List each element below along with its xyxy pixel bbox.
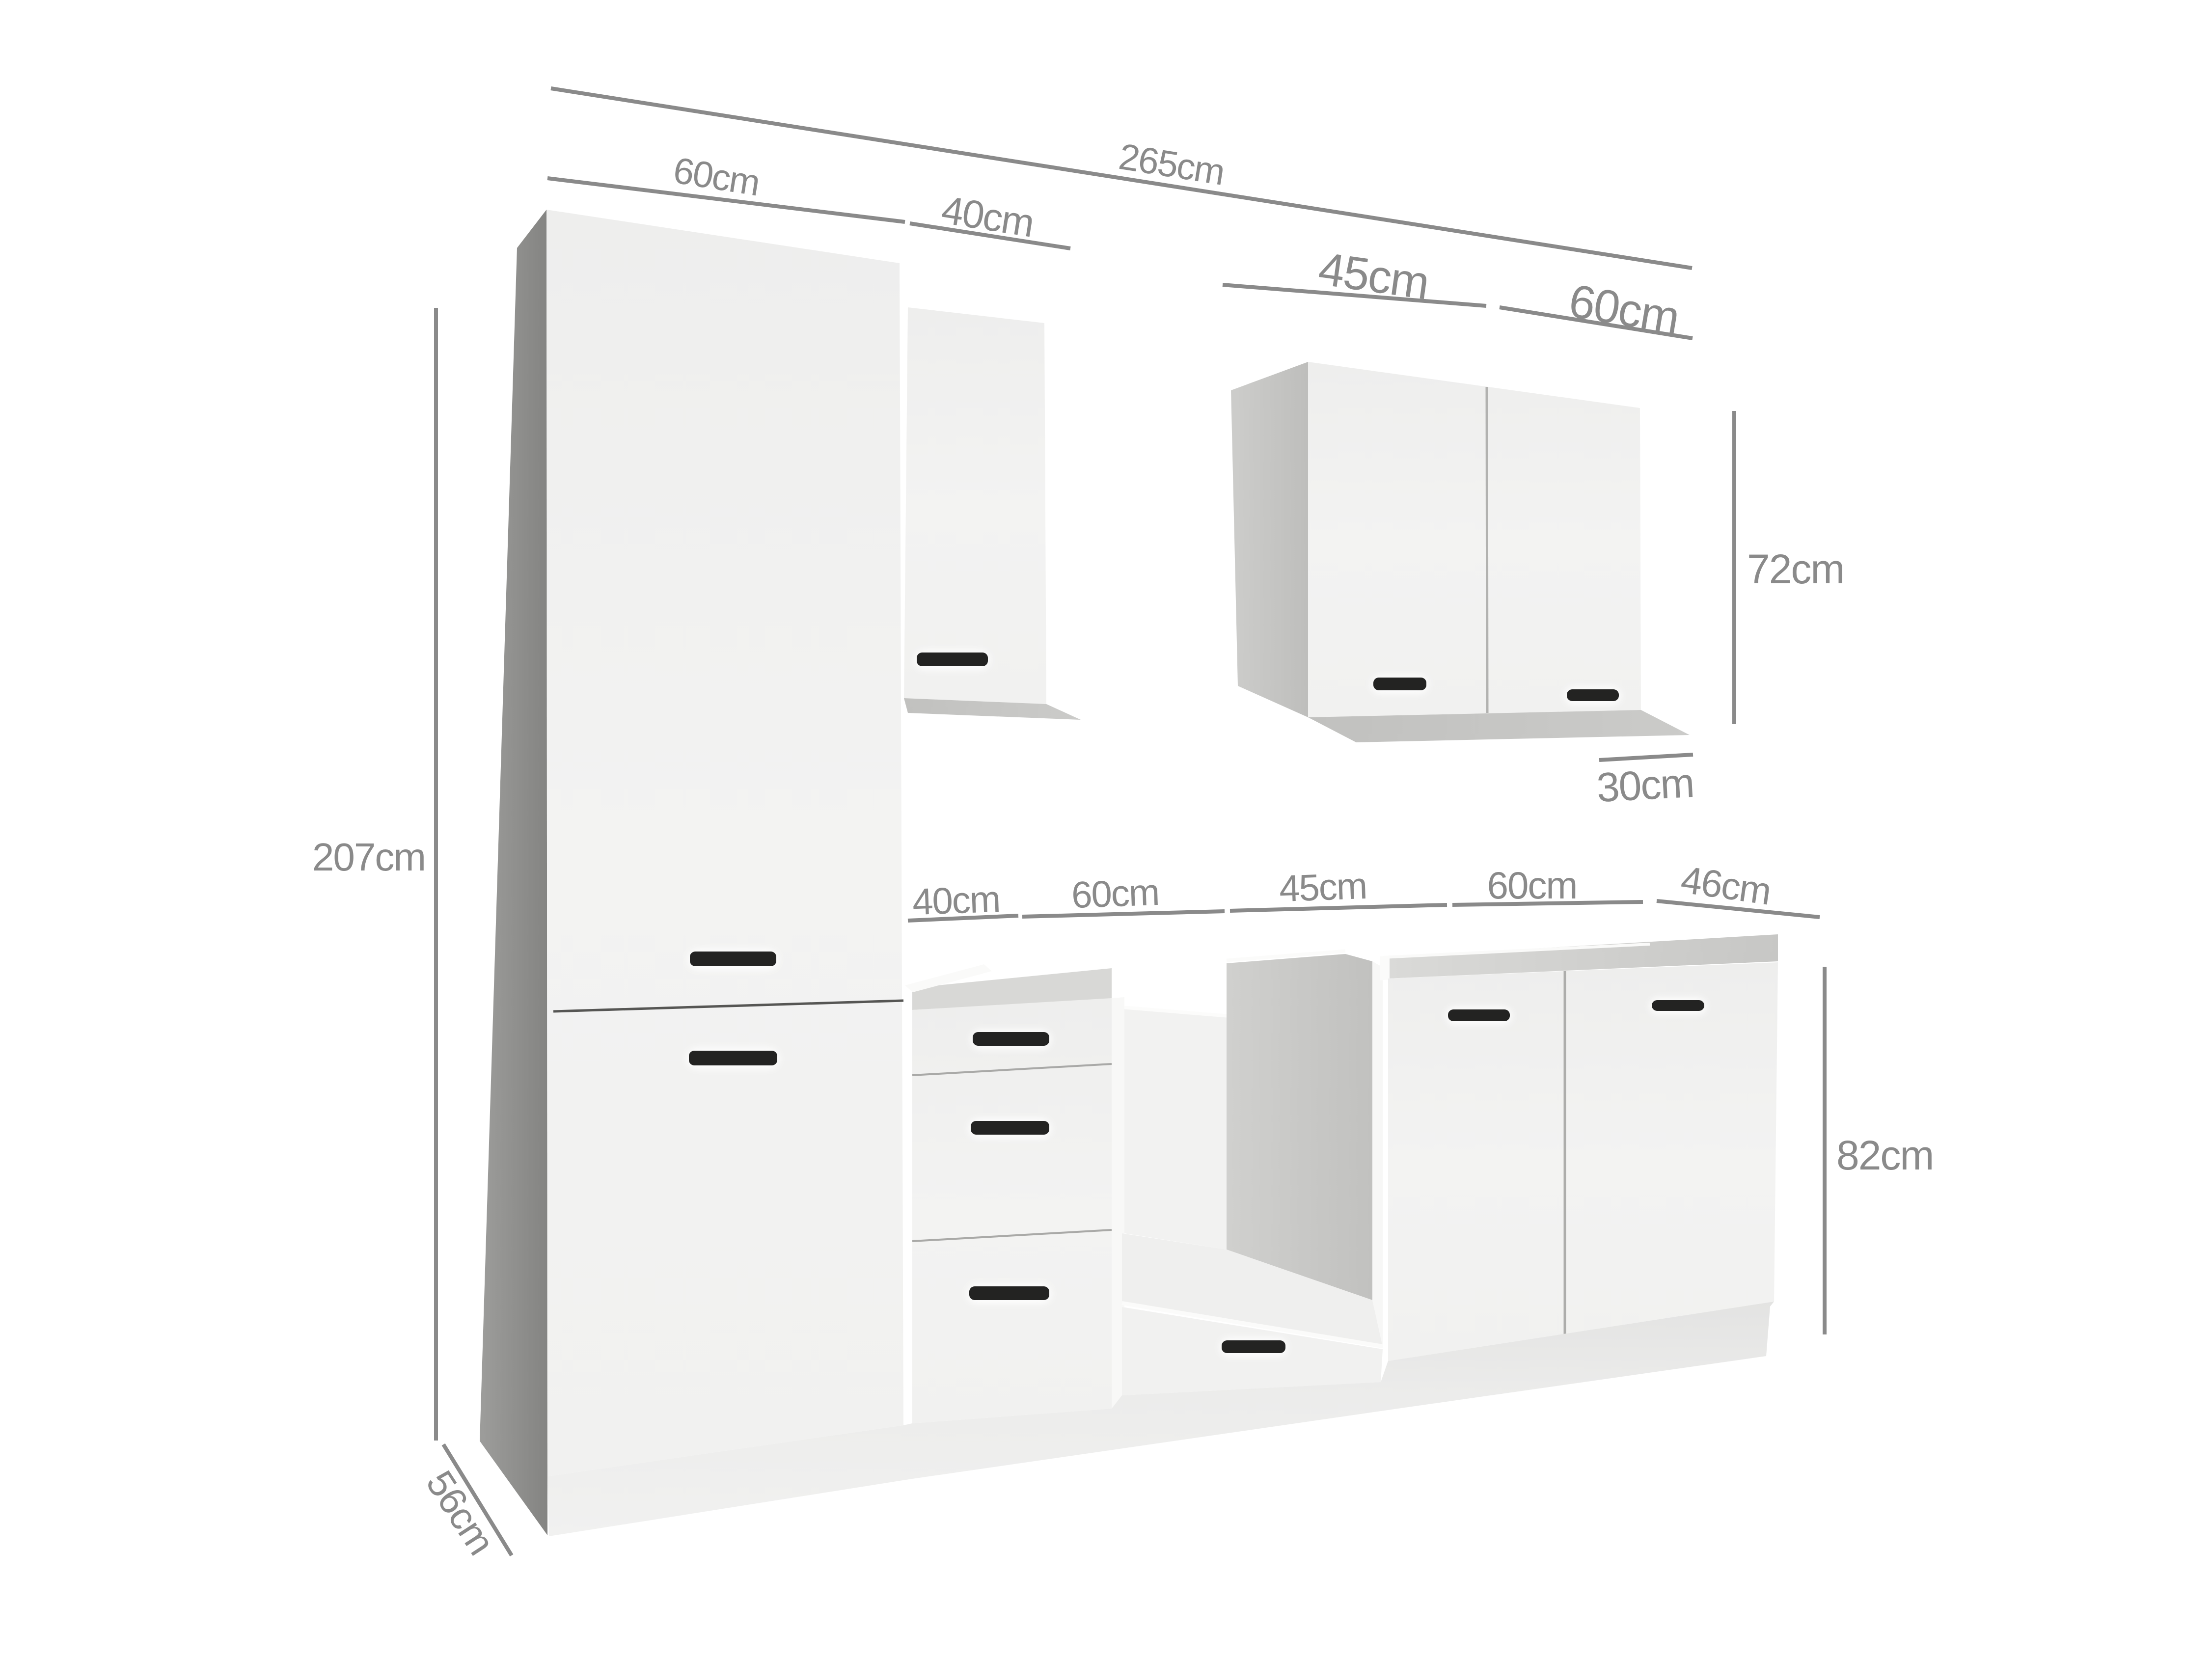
svg-text:60cm: 60cm: [1487, 864, 1577, 907]
svg-text:82cm: 82cm: [1836, 1132, 1933, 1178]
svg-text:40cm: 40cm: [912, 878, 1001, 923]
svg-text:60cm: 60cm: [1071, 871, 1160, 916]
svg-text:72cm: 72cm: [1747, 546, 1844, 592]
svg-text:30cm: 30cm: [1595, 760, 1694, 811]
svg-text:207cm: 207cm: [312, 835, 425, 879]
svg-text:45cm: 45cm: [1279, 865, 1367, 910]
